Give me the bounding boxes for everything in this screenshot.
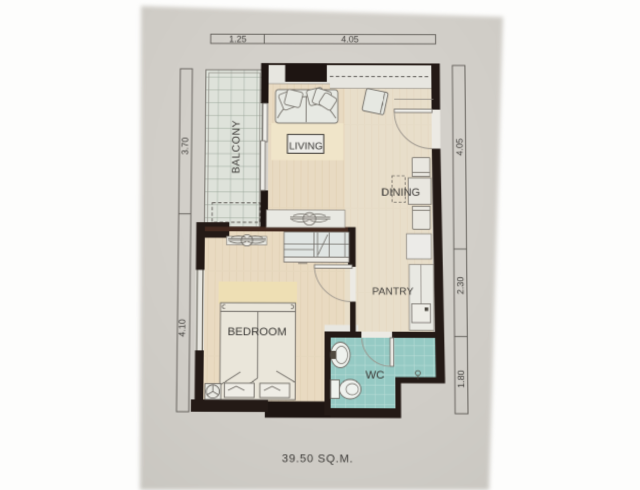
svg-text:2.30: 2.30 <box>455 277 466 295</box>
svg-text:PANTRY: PANTRY <box>372 286 414 297</box>
svg-text:BALCONY: BALCONY <box>231 120 243 174</box>
svg-text:BEDROOM: BEDROOM <box>227 326 286 339</box>
svg-text:DINING: DINING <box>381 187 420 199</box>
svg-text:39.50 SQ.M.: 39.50 SQ.M. <box>282 453 354 466</box>
svg-text:1.25: 1.25 <box>229 34 247 44</box>
svg-text:4.05: 4.05 <box>454 138 464 155</box>
svg-text:4.10: 4.10 <box>177 319 188 337</box>
svg-text:WC: WC <box>365 369 384 382</box>
svg-text:LIVING: LIVING <box>289 141 323 152</box>
svg-text:3.70: 3.70 <box>180 137 190 154</box>
svg-text:4.05: 4.05 <box>341 34 359 44</box>
svg-text:1.80: 1.80 <box>456 370 467 388</box>
